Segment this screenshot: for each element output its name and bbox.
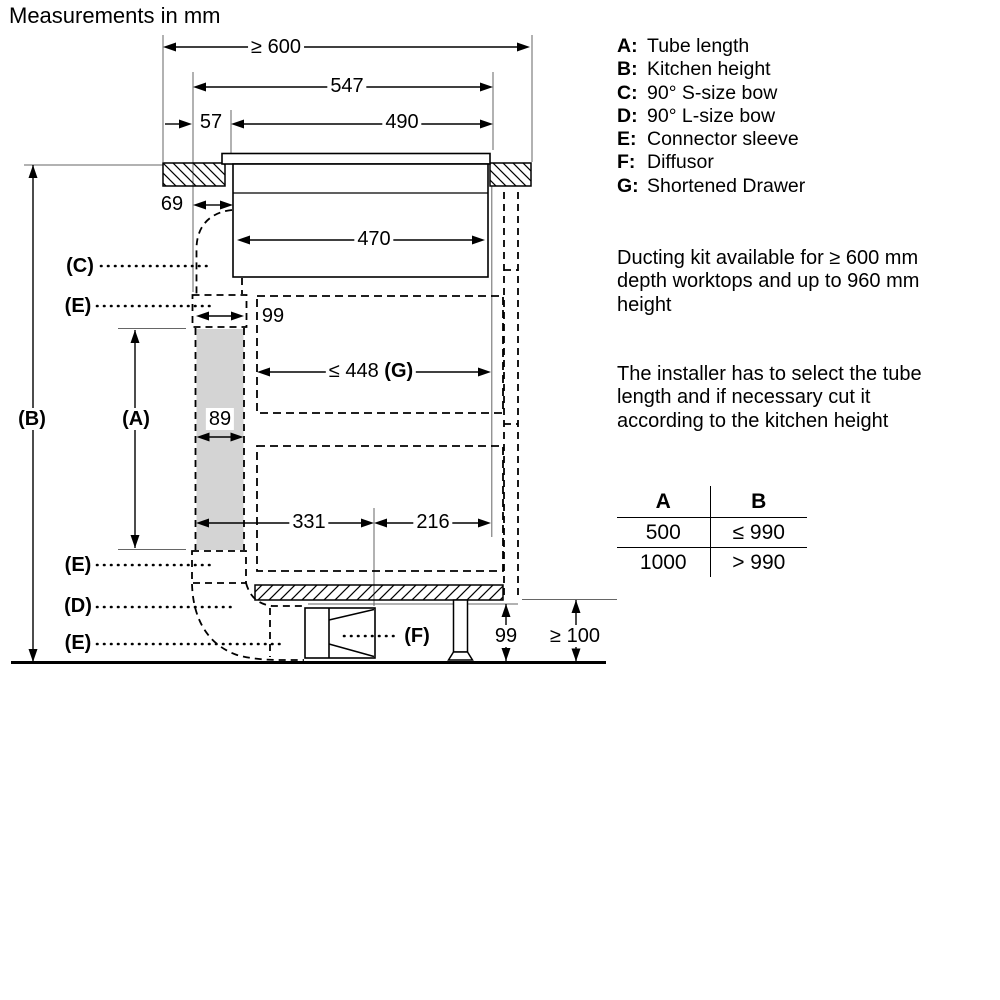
legend-key-d: D: (617, 105, 647, 128)
legend-item-b: B:Kitchen height (617, 58, 805, 81)
legend-label-g: Shortened Drawer (647, 175, 805, 197)
drawer-depth-ref: (G) (384, 360, 413, 382)
legend-item-e: E:Connector sleeve (617, 128, 805, 151)
legend-key-e: E: (617, 128, 647, 151)
hob-body (233, 164, 488, 277)
legend-item-a: A:Tube length (617, 35, 805, 58)
note-line: according to the kitchen height (617, 410, 922, 433)
legend-item-f: F:Diffusor (617, 151, 805, 174)
legend-key-f: F: (617, 151, 647, 174)
table-header-a: A (617, 486, 710, 517)
dim-back-depth: 216 (413, 511, 452, 533)
ref-label-f: (F) (401, 625, 433, 647)
legend-key-g: G: (617, 175, 647, 198)
legend-item-c: C:90° S-size bow (617, 82, 805, 105)
legend-label-c: 90° S-size bow (647, 82, 777, 104)
connector-sleeve-top (193, 295, 247, 327)
table-header-b: B (710, 486, 807, 517)
table-row: 500 ≤ 990 (617, 518, 807, 548)
note-installer: The installer has to select the tube len… (617, 363, 922, 433)
note-line: The installer has to select the tube (617, 363, 922, 386)
dim-sleeve-width: 99 (259, 305, 287, 327)
drawer-depth-value: ≤ 448 (329, 360, 379, 382)
ref-label-b: (B) (15, 408, 49, 430)
note-line: length and if necessary cut it (617, 386, 922, 409)
tube-length-table: A B 500 ≤ 990 1000 > 990 (617, 486, 807, 577)
legend-key-b: B: (617, 58, 647, 81)
dim-tube-width: 89 (206, 408, 234, 430)
ref-label-a: (A) (119, 408, 153, 430)
cabinet-leg (449, 600, 473, 660)
ref-label-d: (D) (61, 595, 95, 617)
legend-label-f: Diffusor (647, 151, 714, 173)
dim-front-offset: 57 (197, 111, 225, 133)
dim-hob-total-depth: 547 (327, 75, 366, 97)
table-cell-b2: > 990 (710, 548, 807, 577)
dim-hob-body-depth: 470 (354, 228, 393, 250)
dim-front-depth: 331 (289, 511, 328, 533)
diffusor (305, 608, 375, 658)
dim-drawer-depth: ≤ 448 (G) (326, 360, 416, 382)
table-cell-a1: 500 (617, 518, 710, 547)
ref-label-c: (C) (63, 255, 97, 277)
dim-floor-clearance: ≥ 100 (547, 625, 603, 647)
note-line: depth worktops and up to 960 mm (617, 270, 919, 293)
installation-diagram-page: Measurements in mm ≥ 600 547 57 490 69 4… (0, 0, 1000, 1000)
legend: A:Tube length B:Kitchen height C:90° S-s… (617, 35, 805, 198)
legend-item-d: D:90° L-size bow (617, 105, 805, 128)
dim-outlet-offset: 69 (158, 193, 186, 215)
ref-label-e-mid: (E) (62, 554, 95, 576)
legend-label-b: Kitchen height (647, 58, 771, 80)
legend-key-a: A: (617, 35, 647, 58)
legend-label-e: Connector sleeve (647, 128, 799, 150)
dim-diffusor-height: 99 (492, 625, 520, 647)
ref-label-e-top: (E) (62, 295, 95, 317)
note-line: height (617, 294, 919, 317)
dim-worktop-depth: ≥ 600 (248, 36, 304, 58)
dim-cutout-depth: 490 (382, 111, 421, 133)
ref-label-e-bottom: (E) (62, 632, 95, 654)
table-row: 1000 > 990 (617, 548, 807, 577)
note-ducting-kit: Ducting kit available for ≥ 600 mm depth… (617, 247, 919, 317)
diagram-linework (0, 0, 640, 700)
note-line: Ducting kit available for ≥ 600 mm (617, 247, 919, 270)
page-title: Measurements in mm (9, 3, 221, 29)
legend-key-c: C: (617, 82, 647, 105)
connector-sleeve-bottom (192, 551, 246, 583)
legend-item-g: G:Shortened Drawer (617, 175, 805, 198)
table-cell-a2: 1000 (617, 548, 710, 577)
cabinet-bottom-shelf (255, 585, 503, 600)
table-header-row: A B (617, 486, 807, 518)
rear-duct-channel (504, 192, 518, 598)
legend-label-d: 90° L-size bow (647, 105, 775, 127)
table-cell-b1: ≤ 990 (710, 518, 807, 547)
legend-label-a: Tube length (647, 35, 749, 57)
hob-glass-top (222, 154, 490, 165)
dimension-lines (29, 43, 581, 663)
